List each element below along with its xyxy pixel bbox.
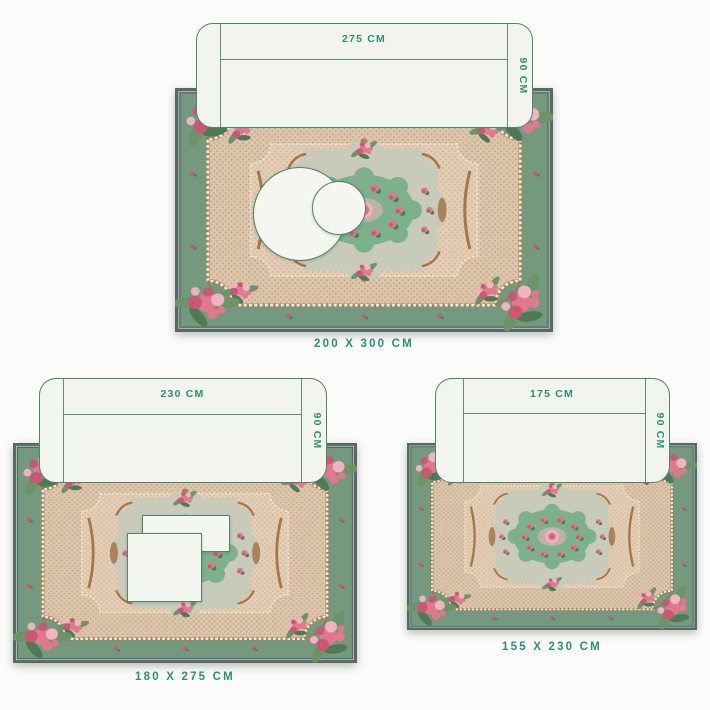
coffee-table-front [127, 533, 202, 602]
sofa-outline: 275 CM 90 CM [196, 23, 533, 128]
sofa-armrest-line-right [301, 379, 302, 482]
rug-size-label: 180 X 275 CM [13, 671, 357, 683]
sofa-backrest-line [63, 414, 302, 415]
rug-size-label: 200 X 300 CM [175, 338, 553, 350]
sofa-width-label: 230 CM [65, 388, 300, 400]
sofa-depth-label: 90 CM [311, 412, 323, 449]
round-table-small [312, 181, 366, 235]
sofa-depth-label: 90 CM [654, 412, 666, 449]
sofa-backrest-line [463, 413, 646, 414]
sofa-armrest-line-right [507, 24, 508, 127]
sofa-width-label: 275 CM [222, 33, 506, 45]
sofa-outline: 175 CM 90 CM [435, 378, 670, 483]
rug-size-label: 155 X 230 CM [407, 641, 697, 653]
rug-size-guide: 275 CM 90 CM 200 X 300 CM 230 CM 90 CM 1… [0, 0, 710, 710]
sofa-outline: 230 CM 90 CM [39, 378, 327, 483]
sofa-depth-label: 90 CM [517, 57, 529, 94]
sofa-armrest-line-right [645, 379, 646, 482]
sofa-backrest-line [220, 59, 508, 60]
sofa-width-label: 175 CM [461, 388, 643, 400]
